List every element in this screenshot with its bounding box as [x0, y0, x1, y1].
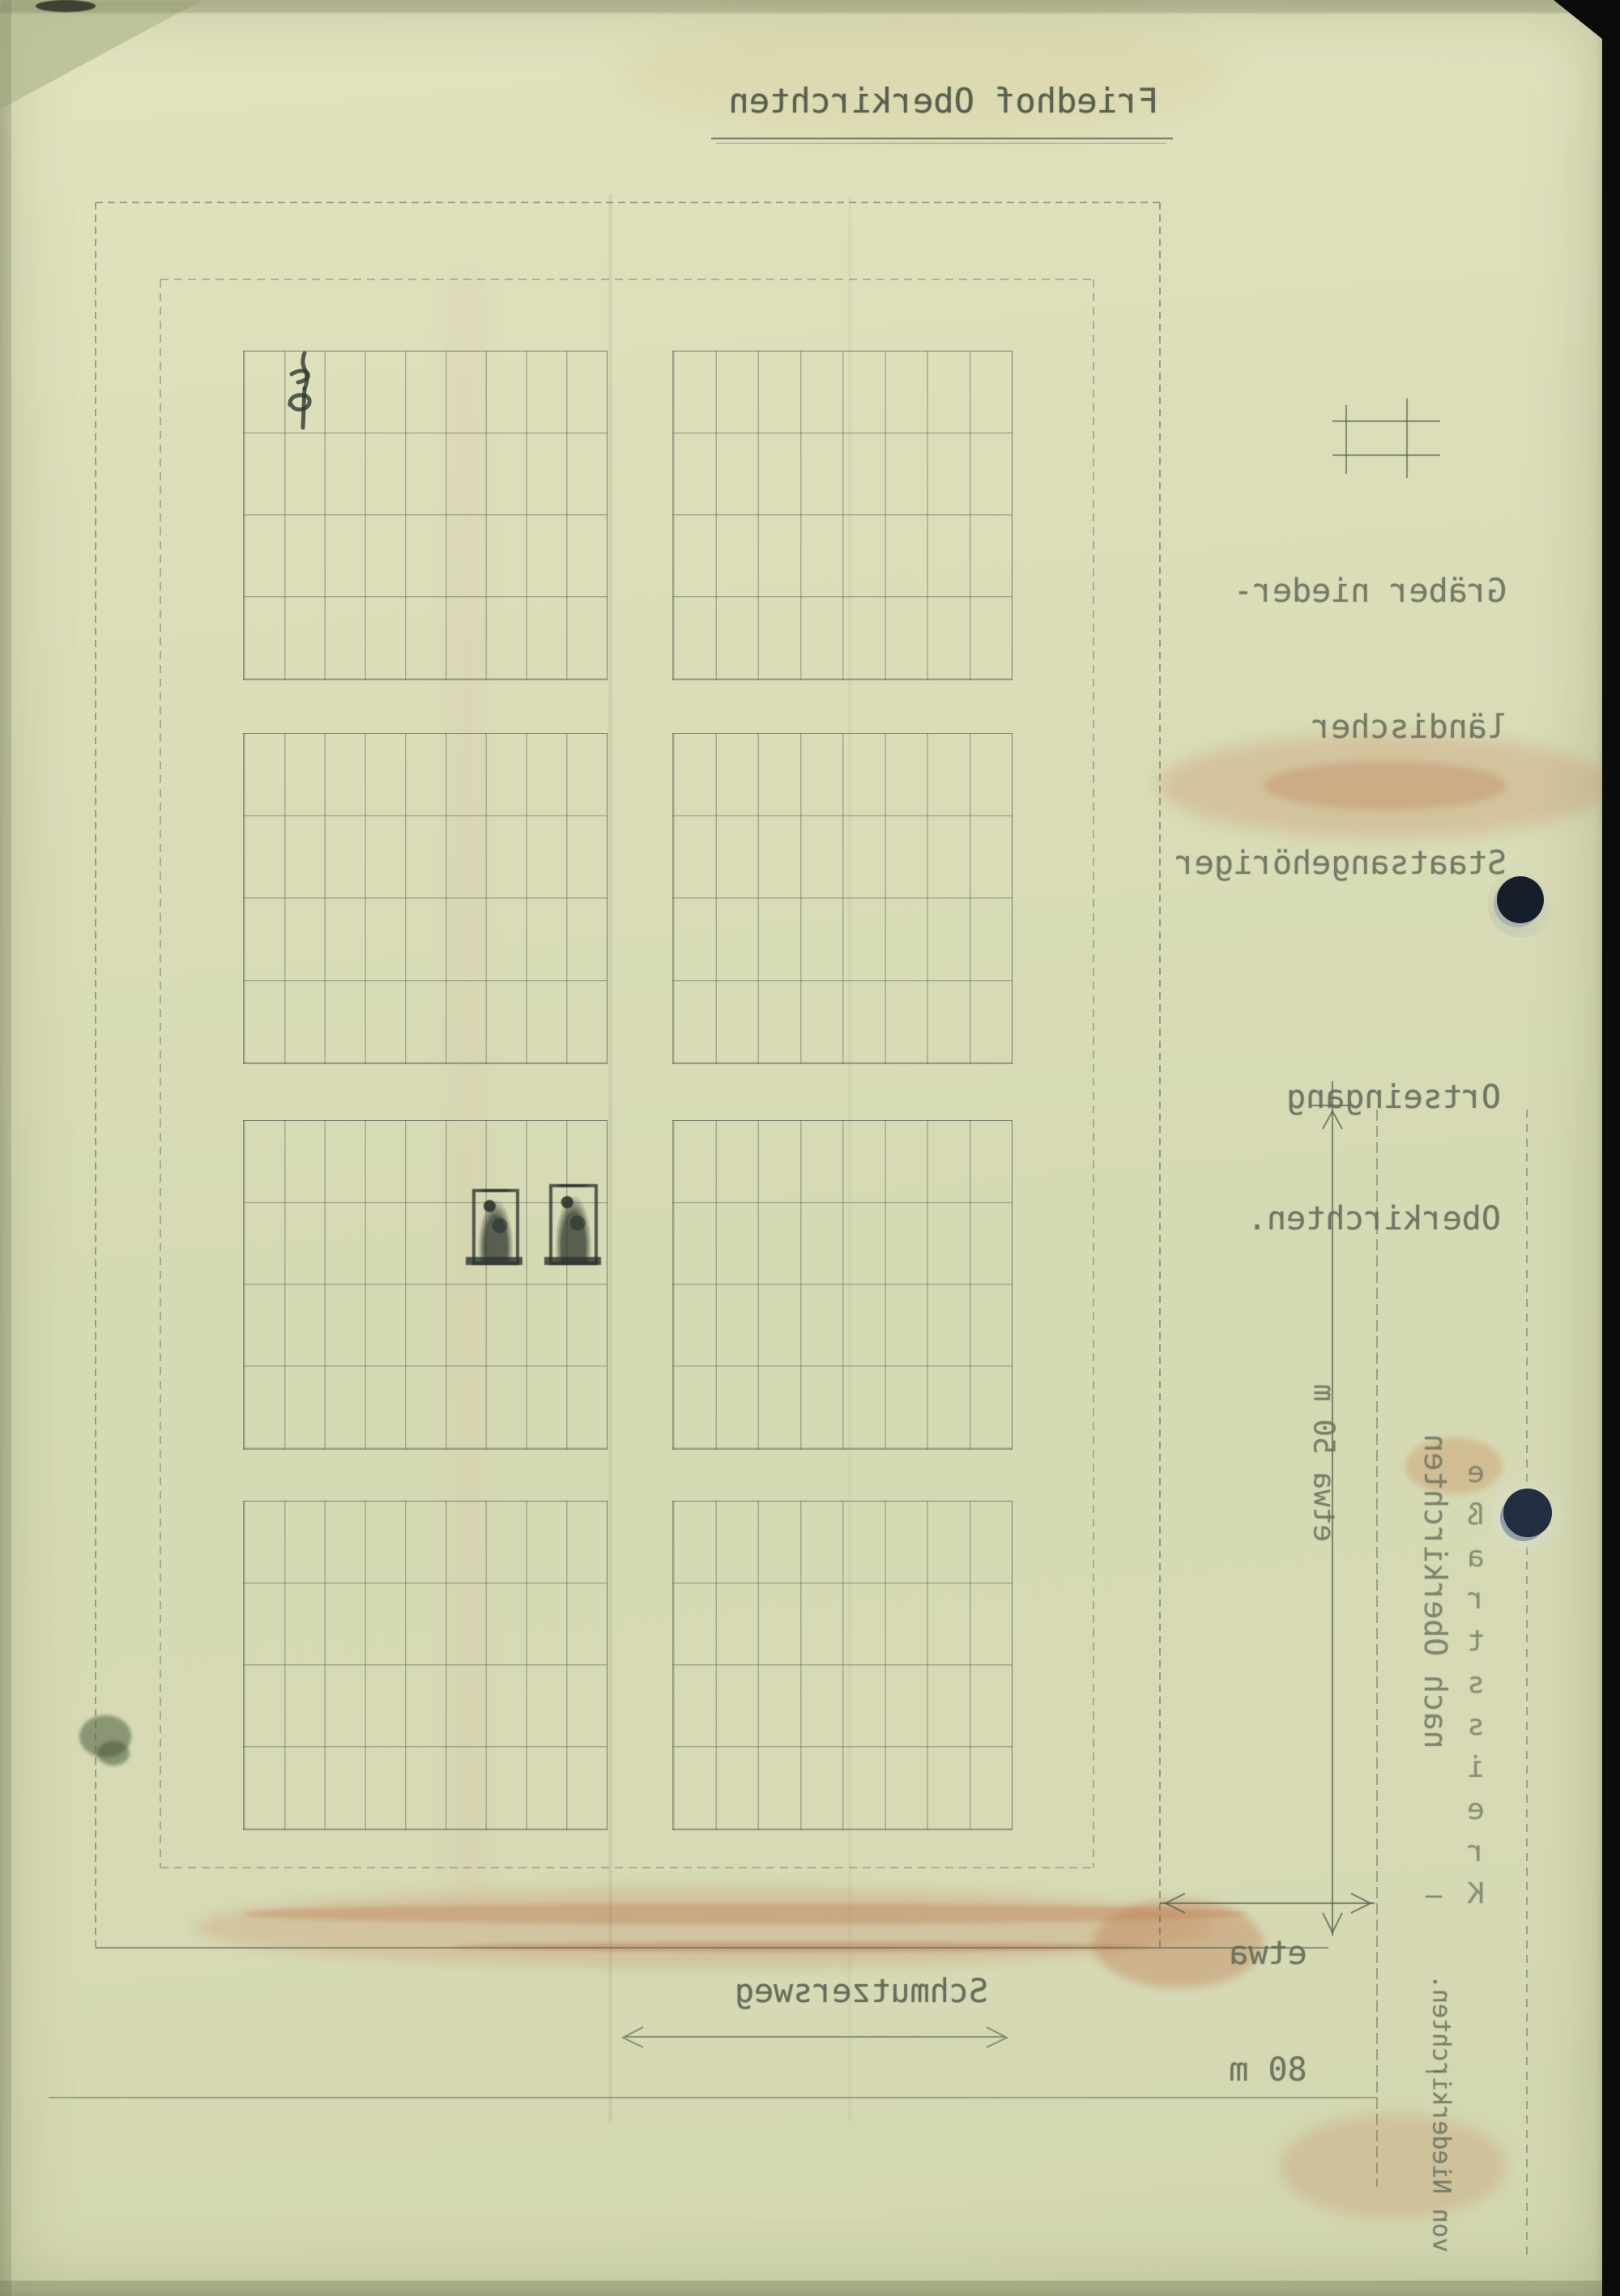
road-name-letter: K: [1457, 1877, 1494, 1919]
scan-edge-right: [1602, 0, 1620, 2296]
road-name-letter: r: [1457, 1835, 1494, 1877]
marked-grave-cell-1-base: [466, 1257, 522, 1265]
legend-line-3: Staatsangehöriger: [1130, 841, 1507, 886]
road-name-letter: a: [1457, 1540, 1494, 1582]
grave-field-block-A1: [243, 351, 607, 680]
entrance-label: Ortseingang Oberkirchten.: [1246, 996, 1501, 1320]
road-name-letter: r: [1457, 1582, 1494, 1625]
grave-field-block-A4: [243, 1501, 607, 1830]
road-to-label: nach Oberkirchten: [1417, 1425, 1453, 1758]
grave-field-block-B2: [672, 733, 1013, 1064]
distance-80m-line-1: etwa: [1197, 1934, 1339, 1973]
legend-line-2: ländischer: [1130, 705, 1507, 750]
entrance-line-1: Ortseingang: [1246, 1077, 1501, 1118]
marked-grave-cell-2-base: [544, 1257, 601, 1265]
grave-field-block-B1: [672, 351, 1013, 680]
road-from-label: von Niederkirchten.: [1427, 1974, 1456, 2254]
path-name-label: Schmutzersweg: [693, 1973, 988, 2010]
road-dash: —: [1416, 1866, 1452, 1924]
page-title: Friedhof Oberkirchten: [713, 81, 1174, 121]
legend-grid-symbol: [1332, 398, 1440, 478]
grave-field-block-A2: [243, 733, 607, 1064]
distance-80m-line-2: 80 m: [1197, 2051, 1339, 2089]
road-name-letter: e: [1457, 1793, 1494, 1835]
scanned-page: Friedhof Oberkirchten Gräber nieder- län…: [0, 0, 1620, 2296]
road-name-letter: e: [1457, 1456, 1494, 1498]
road-name-label: eßartssierK: [1457, 1456, 1494, 1926]
road-name-letter: t: [1457, 1625, 1494, 1667]
road-name-letter: s: [1457, 1709, 1494, 1751]
punch-hole-1: [1497, 876, 1544, 923]
road-name-letter: i: [1457, 1751, 1494, 1793]
marked-grave-cell-1: [472, 1189, 519, 1265]
path-direction-arrow: [623, 2027, 1007, 2047]
title-underline: [711, 138, 1173, 143]
grave-field-block-B3: [672, 1120, 1013, 1450]
legend-text: Gräber nieder- ländischer Staatsangehöri…: [1130, 478, 1507, 977]
distance-80m-label: etwa 80 m: [1197, 1856, 1339, 2167]
entrance-line-2: Oberkirchten.: [1246, 1199, 1501, 1239]
road-name-letter: s: [1457, 1667, 1494, 1709]
legend-line-1: Gräber nieder-: [1130, 569, 1507, 614]
punch-hole-2: [1503, 1489, 1552, 1537]
distance-50m-label: etwa 50 m: [1307, 1378, 1341, 1548]
paper-sheet: Friedhof Oberkirchten Gräber nieder- län…: [0, 0, 1602, 2296]
grave-field-block-B4: [672, 1501, 1013, 1830]
grave-field-block-A3: [243, 1120, 607, 1450]
marked-grave-cell-2: [549, 1184, 598, 1265]
